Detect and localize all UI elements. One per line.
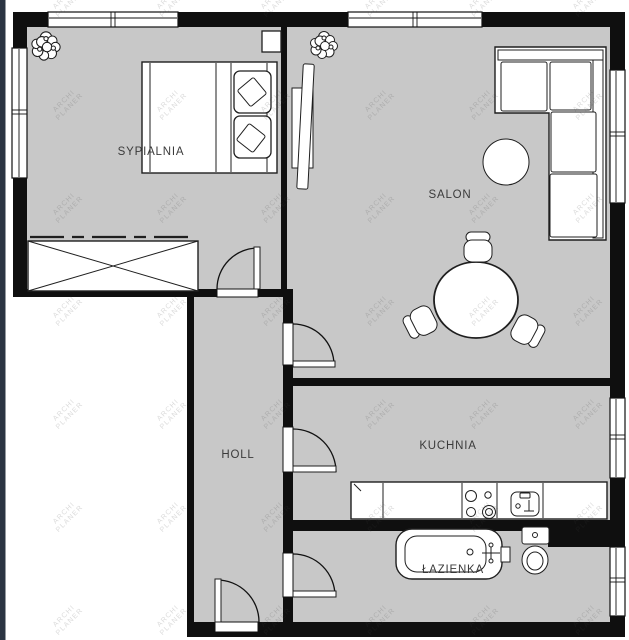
room-label-kuchnia: KUCHNIA [419, 440, 476, 452]
dining-chair [464, 232, 492, 262]
wall-bedroom-salon [281, 12, 287, 297]
wall-salon-kitchen [283, 378, 625, 386]
room-label-holl: HOLL [221, 449, 254, 461]
floor-plan: SYPIALNIA SALON HOLL KUCHNIA ŁAZIENKA AR… [0, 0, 629, 640]
sink [511, 492, 539, 516]
toilet [522, 527, 549, 574]
window-salon-right [610, 70, 625, 203]
pillow [234, 116, 271, 158]
wardrobe [28, 237, 198, 291]
room-label-lazienka: ŁAZIENKA [422, 564, 484, 576]
floor-plan-svg: SYPIALNIA SALON HOLL KUCHNIA ŁAZIENKA AR… [0, 0, 629, 640]
window-bathroom-right [610, 547, 625, 616]
bathtub-handle [501, 547, 510, 562]
wall-hall-left [187, 289, 194, 637]
room-label-salon: SALON [429, 189, 472, 201]
nightstand [262, 31, 281, 52]
scan-edge-strip [0, 0, 6, 640]
window-bedroom-left [12, 48, 27, 178]
room-label-sypialnia: SYPIALNIA [118, 146, 185, 158]
window-kitchen-right [610, 398, 625, 478]
round-rug [483, 139, 529, 185]
